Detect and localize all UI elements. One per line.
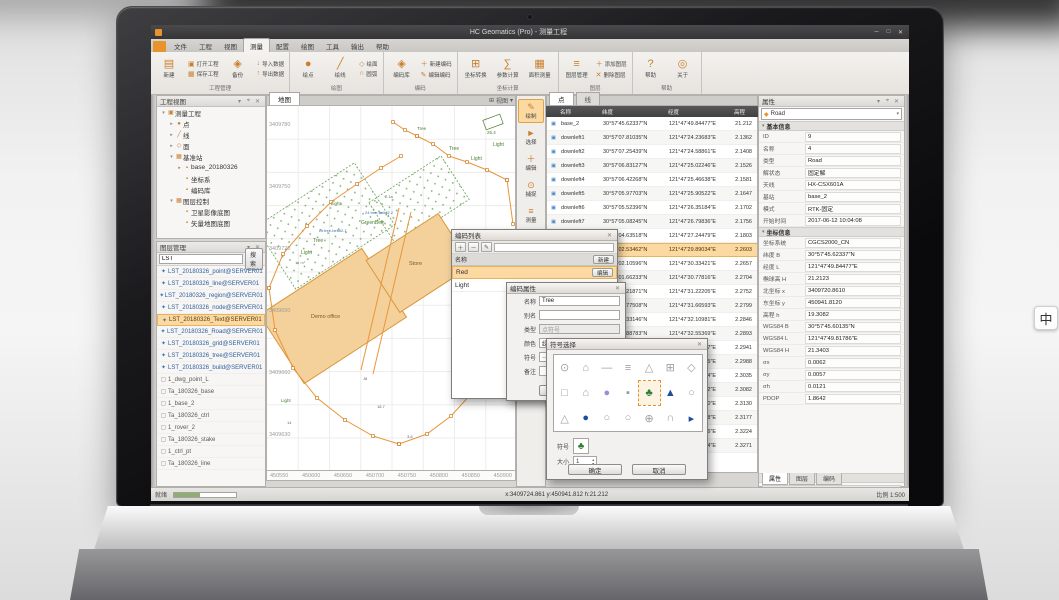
menu-tab-文件[interactable]: 文件 [168, 39, 193, 52]
symbol-cell[interactable]: ▲ [660, 381, 681, 406]
property-value[interactable]: 2017-06-12 10:04:08 [805, 216, 901, 226]
webcam [527, 14, 533, 20]
svg-text:7.1a: 7.1a [385, 194, 394, 199]
property-value[interactable]: 4 [805, 144, 901, 154]
tool-编辑[interactable]: ＋编辑 [518, 151, 544, 175]
ribbon-tabbar: 文件工程视图测量配置绘图工具输出帮助 [151, 39, 909, 52]
ime-indicator: 中 [1034, 306, 1058, 330]
ribbon-button-label: 绘点 [303, 71, 314, 79]
ribbon-group-label: 编码 [387, 84, 454, 94]
properties-tab-图层[interactable]: 图层 [789, 473, 815, 485]
ribbon-group: ▤新建▣打开工程▦保存工程◈备份↓导入数据↑导出数据工程管理 [151, 52, 290, 94]
properties-tab-属性[interactable]: 属性 [762, 473, 788, 485]
ribbon-button-新建编码[interactable]: ＋新建编码 [419, 59, 454, 69]
ribbon-icon: ◇ [359, 60, 364, 68]
property-value[interactable]: 19.3082 [805, 310, 901, 320]
keyboard-area [70, 549, 988, 600]
ribbon-button-编码库[interactable]: ◈编码库 [387, 53, 417, 84]
ribbon-icon: ▤ [164, 58, 174, 70]
minimize-button[interactable]: ─ [871, 27, 882, 37]
ribbon-icon: ⊞ [471, 58, 480, 70]
x-axis-tick: 450750 [398, 473, 416, 479]
ribbon-button-参数计算[interactable]: ∑参数计算 [493, 53, 523, 84]
ribbon-icon: ＋ [421, 59, 428, 69]
ribbon-icon: ≡ [573, 58, 579, 70]
collapse-icon[interactable]: ▾ [874, 98, 883, 105]
ribbon-button-圆弧[interactable]: ∩圆弧 [357, 70, 379, 78]
table-tab-点[interactable]: 点 [549, 92, 574, 105]
svg-text:Light: Light [301, 250, 312, 256]
tree-item-点[interactable]: ▸●点 [157, 118, 265, 129]
section-header-坐标信息[interactable]: ▾坐标信息 [759, 227, 904, 237]
svg-text:Tree: Tree [313, 238, 323, 244]
ribbon-button-保存工程[interactable]: ▦保存工程 [186, 70, 221, 78]
dialog-title: 编码列表 [455, 230, 481, 240]
property-row: 高程 h19.3082 [759, 309, 904, 321]
ribbon-icon: ▣ [188, 60, 195, 68]
tree-item-编码库[interactable]: ▪编码库 [157, 184, 265, 195]
ribbon-group-label: 帮助 [636, 84, 698, 94]
layer-search-input[interactable] [159, 254, 243, 264]
tool-测量[interactable]: ≡测量 [518, 203, 544, 227]
ribbon-button-label: 导出数据 [262, 70, 284, 78]
symbol-cell[interactable]: ● [596, 381, 617, 406]
ribbon-button-label: 打开工程 [197, 60, 219, 68]
ribbon-button-label: 备份 [232, 71, 243, 79]
ribbon-button-关于[interactable]: ◎关于 [668, 53, 698, 84]
map-tabbar: 地图 ⊞ 视图 ▾ [266, 95, 516, 106]
remove-code-button[interactable]: － [468, 242, 479, 252]
property-value[interactable]: 450941.8120 [805, 298, 901, 308]
close-icon[interactable]: ✕ [892, 98, 901, 105]
ribbon-button-打开工程[interactable]: ▣打开工程 [186, 60, 221, 68]
ribbon-icon: ╱ [337, 58, 344, 70]
x-axis-tick: 450850 [462, 473, 480, 479]
y-axis-tick: 3409720 [269, 246, 290, 252]
property-row: 经度 L121°47'49.84477″E [759, 261, 904, 273]
code-filter-input[interactable] [494, 243, 614, 252]
x-axis-tick: 450550 [270, 473, 288, 479]
tree-item-矢量地图底图[interactable]: ▪矢量地图底图 [157, 217, 265, 228]
field-类型: 点符号 [539, 324, 620, 334]
file-menu-icon[interactable] [153, 41, 166, 52]
y-axis-tick: 3409780 [269, 122, 290, 128]
diamond-icon: ◆ [764, 111, 769, 118]
property-grid: ▾基本信息ID9名称4类型Road解状态固定解天线HX-CSX601A基站bas… [759, 121, 904, 405]
layer-item[interactable]: ✦LST_20180326_build@SERVER01 [157, 362, 265, 374]
tool-捕捉[interactable]: ⊙捕捉 [518, 177, 544, 201]
ribbon-button-label: 参数计算 [497, 71, 519, 79]
svg-text:Tree: Tree [417, 126, 427, 131]
properties-header: 属性 ▾ ⌖ ✕ [759, 96, 904, 107]
ribbon-group: ⊞坐标转换∑参数计算▦面积测量坐标计算 [458, 52, 559, 94]
svg-text:J8: J8 [363, 376, 368, 381]
ribbon-group-label: 坐标计算 [461, 84, 555, 94]
layer-item[interactable]: ▢1_rover_2 [157, 422, 265, 434]
menu-tab-视图[interactable]: 视图 [218, 39, 243, 52]
layer-item[interactable]: ✦LST_20180326_node@SERVER01 [157, 302, 265, 314]
properties-panel: 属性 ▾ ⌖ ✕ ◆ Road ▾ ▾基本信息ID9名称4类型Road解状态固定… [758, 95, 905, 487]
ribbon-button-label: 图层管理 [566, 71, 588, 79]
symbol-cell[interactable]: □ [554, 381, 575, 406]
ribbon-button-label: 圆弧 [366, 70, 377, 78]
layer-item[interactable]: ✦LST_20180326_tree@SERVER01 [157, 350, 265, 362]
svg-text:18.7: 18.7 [377, 404, 386, 409]
symbol-cell[interactable]: ⌂ [575, 355, 596, 381]
ribbon-button-label: 坐标转换 [465, 71, 487, 79]
ribbon-button-添加图层[interactable]: ＋添加图层 [594, 59, 629, 69]
ribbon-button-label: 导入数据 [262, 60, 284, 68]
svg-text:24 tree-belt#2.2: 24 tree-belt#2.2 [365, 210, 394, 215]
layer-item[interactable]: ✦LST_20180326_Text@SERVER01 [157, 314, 265, 326]
field-别名[interactable] [539, 310, 620, 320]
property-row: 坐标系统CGCS2000_CN [759, 237, 904, 249]
photo-background: HC Geomatics (Pro) - 测量工程 ─□✕ 文件工程视图测量配置… [0, 0, 1059, 600]
symbol-cell[interactable]: ♣ [639, 381, 660, 406]
ribbon-icon: ● [305, 58, 312, 70]
ribbon-button-编辑编码[interactable]: ✎编辑编码 [419, 71, 454, 79]
property-row: 纬度 B30°57'45.62337″N [759, 249, 904, 261]
symbol-cell[interactable]: — [596, 355, 617, 381]
ribbon-icon: ▦ [188, 70, 195, 78]
ribbon-icon: ∩ [359, 70, 364, 77]
close-button[interactable]: ✕ [895, 27, 906, 37]
property-value[interactable]: 0.0062 [805, 358, 901, 368]
ribbon-button-删除图层[interactable]: ✕删除图层 [594, 71, 629, 79]
ribbon-button-绘线[interactable]: ╱绘线 [325, 53, 355, 84]
svg-text:Light: Light [281, 398, 292, 403]
form-row-类型: 类型点符号 [507, 322, 625, 336]
form-row-名称: 名称Tree [507, 294, 625, 308]
symbol-cell[interactable]: ○ [681, 381, 702, 406]
tree-item-面[interactable]: ▸◇面 [157, 140, 265, 151]
feature-type-combo[interactable]: ◆ Road ▾ [761, 108, 902, 120]
menu-tab-帮助[interactable]: 帮助 [370, 39, 395, 52]
table-row[interactable]: ▣downleft130°57'07.81035″N121°47'24.2368… [547, 131, 757, 145]
ribbon-icon: ▦ [534, 58, 544, 70]
ribbon-button-绘面[interactable]: ◇绘面 [357, 60, 379, 68]
tree-item-线[interactable]: ▸╱线 [157, 129, 265, 140]
code-list-header: 名称 新建 [452, 254, 617, 266]
ribbon-button-绘点[interactable]: ●绘点 [293, 53, 323, 84]
menu-tab-工具[interactable]: 工具 [320, 39, 345, 52]
project-tree-panel: 工程视图 ▾ ⌖ ✕ ▾▣测量工程▸●点▸╱线▸◇面▾▦基准站▸▪base_20… [156, 95, 266, 239]
table-column-header: 高程 [733, 108, 752, 116]
ribbon-button-新建[interactable]: ▤新建 [154, 53, 184, 84]
close-icon[interactable]: ✕ [253, 98, 262, 105]
column-name: 名称 [455, 255, 467, 264]
table-column-header: 名称 [559, 108, 601, 116]
collapse-icon[interactable]: ▾ [235, 98, 244, 105]
tool-绘制[interactable]: ✎绘制 [518, 99, 544, 123]
tree-item-坐标系[interactable]: ▪坐标系 [157, 173, 265, 184]
ribbon-group-label: 绘图 [293, 84, 379, 94]
ribbon-group: ◈编码库＋新建编码✎编辑编码编码 [384, 52, 458, 94]
ok-button[interactable]: 确定 [568, 464, 622, 475]
edit-code-button[interactable]: ✎ [481, 242, 492, 252]
svg-text:Demo office: Demo office [311, 314, 340, 320]
layer-item[interactable]: ▢Ta_180326_stake [157, 434, 265, 446]
property-value[interactable]: 21.3403 [805, 346, 901, 356]
property-value[interactable]: 9 [805, 132, 901, 142]
menu-tab-工程[interactable]: 工程 [193, 39, 218, 52]
table-column-header: 纬度 [601, 108, 667, 116]
ribbon-button-导入数据[interactable]: ↓导入数据 [255, 60, 287, 68]
chevron-down-icon: ▾ [896, 111, 899, 117]
property-value[interactable]: 3409720.8610 [805, 286, 901, 296]
table-row[interactable]: ▣downleft530°57'05.97703″N121°47'25.9052… [547, 187, 757, 201]
close-icon[interactable]: ✕ [613, 285, 622, 292]
project-tree: ▾▣测量工程▸●点▸╱线▸◇面▾▦基准站▸▪base_20180326▪坐标系▪… [157, 107, 265, 228]
property-value[interactable]: 30°57'45.60135″N [805, 322, 901, 332]
layer-item[interactable]: ▢1_dwg_point_L [157, 374, 265, 386]
code-item-Red[interactable]: Red编辑 [452, 266, 617, 279]
tree-item-卫星影像底图[interactable]: ▪卫星影像底图 [157, 206, 265, 217]
ribbon-icon: ↓ [257, 60, 261, 67]
section-header-基本信息[interactable]: ▾基本信息 [759, 121, 904, 131]
property-value[interactable]: 1.8642 [805, 394, 901, 404]
x-axis-tick: 450650 [334, 473, 352, 479]
property-row: WGS84 L121°47'49.81786″E [759, 333, 904, 345]
laptop-lid: HC Geomatics (Pro) - 测量工程 ─□✕ 文件工程视图测量配置… [116, 6, 944, 507]
ribbon-group: ≡图层管理＋添加图层✕删除图层图层 [559, 52, 633, 94]
property-row: 开始时间2017-06-12 10:04:08 [759, 215, 904, 227]
ribbon-button-帮助[interactable]: ?帮助 [636, 53, 666, 84]
ribbon-icon: ◈ [397, 58, 405, 70]
x-axis-tick: 450700 [366, 473, 384, 479]
ribbon-button-图层管理[interactable]: ≡图层管理 [562, 53, 592, 84]
code-list-toolbar: ＋－✎ [452, 241, 617, 254]
symbol-cell[interactable]: ◇ [681, 355, 702, 381]
y-axis-tick: 3409630 [269, 432, 290, 438]
close-icon[interactable]: ✕ [695, 341, 704, 348]
symbol-cell[interactable]: ∩ [660, 405, 681, 431]
table-row[interactable]: ▣downleft630°57'05.52396″N121°47'26.3518… [547, 201, 757, 215]
symbol-cell[interactable]: △ [554, 405, 575, 431]
ribbon-group: ?帮助◎关于帮助 [633, 52, 702, 94]
property-value[interactable]: CGCS2000_CN [805, 238, 901, 248]
dialog-titlebar: 符号选择 ✕ [547, 339, 707, 350]
ribbon-button-label: 编辑编码 [428, 71, 450, 79]
symbol-cell[interactable]: ⊕ [639, 405, 660, 431]
svg-text:Dr.tree-belt#2.1: Dr.tree-belt#2.1 [319, 228, 347, 233]
property-row: WGS84 B30°57'45.60135″N [759, 321, 904, 333]
table-row[interactable]: ▣downleft430°57'06.42268″N121°47'25.4663… [547, 173, 757, 187]
add-code-button[interactable]: ＋ [455, 242, 466, 252]
menu-tab-绘图[interactable]: 绘图 [295, 39, 320, 52]
layer-item[interactable]: ▢1_base_2 [157, 398, 265, 410]
property-value[interactable]: 121°47'49.81786″E [805, 334, 901, 344]
ribbon-icon: ∑ [504, 58, 512, 70]
symbol-cell[interactable]: ⊞ [660, 355, 681, 381]
svg-text:GreenBelt: GreenBelt [361, 220, 384, 226]
property-row: σh0.0121 [759, 381, 904, 393]
field-名称[interactable]: Tree [539, 296, 620, 306]
ribbon-group-label: 工程管理 [154, 84, 286, 94]
property-row: 东坐标 y450941.8120 [759, 297, 904, 309]
symbol-cell[interactable]: ⌂ [575, 381, 596, 406]
dialog-titlebar: 编码属性 ✕ [507, 283, 625, 294]
svg-text:14: 14 [287, 420, 292, 425]
property-value[interactable]: HX-CSX601A [805, 180, 901, 190]
pin-icon[interactable]: ⌖ [244, 98, 253, 105]
svg-text:Light: Light [493, 142, 504, 148]
layer-item[interactable]: ✦LST_20180326_grid@SERVER01 [157, 338, 265, 350]
symbol-preview: ♣ [573, 438, 589, 454]
edit-button[interactable]: 编辑 [592, 268, 613, 277]
ribbon-button-label: 编码库 [393, 71, 410, 79]
window-controls: ─□✕ [871, 27, 906, 37]
status-ready: 就绪 [155, 490, 167, 499]
pin-icon[interactable]: ⌖ [883, 98, 892, 105]
status-bar: 就绪 x:3409724.861 y:450941.812 h:21.212 比… [151, 487, 909, 501]
dialog-titlebar: 编码列表 ✕ [452, 230, 617, 241]
property-value[interactable]: 21.2123 [805, 274, 901, 284]
symbol-cell[interactable]: ≡ [617, 355, 638, 381]
table-header: 名称纬度经度高程 [546, 106, 758, 117]
ribbon-icon: ＋ [596, 59, 603, 69]
layer-item[interactable]: ▢Ta_180326_line [157, 458, 265, 470]
property-value[interactable]: 121°47'49.84477″E [805, 262, 901, 272]
ribbon-button-label: 关于 [677, 71, 688, 79]
ribbon-icon: ◎ [678, 58, 688, 70]
property-value[interactable]: 固定解 [805, 168, 901, 178]
close-icon[interactable]: ✕ [605, 232, 614, 239]
cancel-button[interactable]: 取消 [632, 464, 686, 475]
property-value[interactable]: 0.0121 [805, 382, 901, 392]
table-row[interactable]: ▣downleft730°57'05.08245″N121°47'26.7983… [547, 215, 757, 229]
table-row[interactable]: ▣downleft330°57'06.83127″N121°47'25.0224… [547, 159, 757, 173]
tree-item-测量工程[interactable]: ▾▣测量工程 [157, 107, 265, 118]
svg-text:Tree: Tree [449, 146, 459, 152]
map-view-controls[interactable]: ⊞ 视图 ▾ [489, 96, 515, 105]
ribbon-button-面积测量[interactable]: ▦面积测量 [525, 53, 555, 84]
dialog-title: 符号选择 [550, 339, 576, 349]
ribbon-button-导出数据[interactable]: ↑导出数据 [255, 70, 287, 78]
layer-item[interactable]: ▢1_ctrl_pt [157, 446, 265, 458]
layer-item[interactable]: ✦LST_20180326_Road@SERVER01 [157, 326, 265, 338]
table-row[interactable]: ▣downleft230°57'07.25439″N121°47'24.5886… [547, 145, 757, 159]
window-titlebar: HC Geomatics (Pro) - 测量工程 ─□✕ [151, 25, 909, 39]
ribbon-toolbar: ▤新建▣打开工程▦保存工程◈备份↓导入数据↑导出数据工程管理●绘点╱绘线◇绘面∩… [151, 52, 909, 95]
property-row: 模式RTK-固定 [759, 203, 904, 215]
table-row[interactable]: ▣base_230°57'45.62337″N121°47'49.84477″E… [547, 117, 757, 131]
tree-item-基准站[interactable]: ▾▦基准站 [157, 151, 265, 162]
menu-tab-输出[interactable]: 输出 [345, 39, 370, 52]
properties-title: 属性 [762, 96, 775, 106]
symbol-cell[interactable]: ▸ [681, 405, 702, 431]
ribbon-button-label: 绘面 [367, 60, 378, 68]
menu-tab-测量[interactable]: 测量 [243, 38, 270, 52]
tree-panel-header: 工程视图 ▾ ⌖ ✕ [157, 96, 265, 107]
layer-search-button[interactable]: 搜索 [245, 248, 263, 270]
property-value[interactable]: base_2 [805, 192, 901, 202]
symbol-cell[interactable]: ○ [617, 405, 638, 431]
menu-tab-配置[interactable]: 配置 [270, 39, 295, 52]
status-scale[interactable]: 比例 1:500 [876, 490, 905, 499]
symbol-cell[interactable]: △ [639, 355, 660, 381]
y-axis-tick: 3409750 [269, 184, 290, 190]
symbol-cell[interactable]: ⊙ [554, 355, 575, 381]
svg-text:Store: Store [409, 261, 422, 267]
new-code-button[interactable]: 新建 [593, 255, 614, 264]
y-axis-tick: 3409660 [269, 370, 290, 376]
table-tabbar: 点线 [546, 95, 758, 106]
layer-item[interactable]: ✦LST_20180326_region@SERVER01 [157, 290, 265, 302]
property-value[interactable]: RTK-固定 [805, 204, 901, 214]
tool-选择[interactable]: ►选择 [518, 125, 544, 149]
ribbon-button-label: 保存工程 [197, 70, 219, 78]
chevron-down-icon: ▾ [510, 97, 513, 104]
symbol-field: 符号 ♣ [557, 438, 589, 454]
ribbon-icon: ↑ [257, 70, 261, 77]
map-x-axis-labels: 4505504506004506504507004507504508004508… [266, 471, 516, 481]
ribbon-button-坐标转换[interactable]: ⊞坐标转换 [461, 53, 491, 84]
property-row: σy0.0057 [759, 369, 904, 381]
layer-search-row: 搜索 [157, 253, 265, 266]
symbol-cell[interactable]: ○ [596, 405, 617, 431]
ribbon-button-label: 帮助 [645, 71, 656, 79]
properties-tab-编码[interactable]: 编码 [816, 473, 842, 485]
layers-panel-title: 图层管理 [160, 242, 186, 252]
svg-text:Light: Light [471, 156, 482, 162]
symbol-grid: ⊙⌂—≡△⊞◇□⌂●▪♣▲○△●○○⊕∩▸ [553, 354, 703, 432]
layer-item[interactable]: ▢Ta_180326_base [157, 386, 265, 398]
symbol-cell[interactable]: ● [575, 405, 596, 431]
property-value[interactable]: Road [805, 156, 901, 166]
ribbon-icon: ◈ [233, 58, 241, 70]
property-row: 名称4 [759, 143, 904, 155]
status-coordinates: x:3409724.861 y:450941.812 h:21.212 [243, 492, 870, 498]
y-axis-tick: 3409690 [269, 308, 290, 314]
x-axis-tick: 450900 [494, 473, 512, 479]
property-row: 椭球高 H21.2123 [759, 273, 904, 285]
property-row: σx0.0062 [759, 357, 904, 369]
property-value[interactable]: 30°57'45.62337″N [805, 250, 901, 260]
property-row: PDOP1.8642 [759, 393, 904, 405]
ribbon-button-label: 新建 [163, 71, 174, 79]
ribbon-icon: ✎ [421, 71, 427, 79]
tab-map[interactable]: 地图 [269, 92, 300, 105]
property-row: 基站base_2 [759, 191, 904, 203]
tree-panel-title: 工程视图 [160, 96, 186, 106]
layer-item[interactable]: ✦LST_20180326_line@SERVER01 [157, 278, 265, 290]
tree-item-图层控制[interactable]: ▾▦图层控制 [157, 195, 265, 206]
layers-panel: 图层管理 ▾ ✕ 搜索 ✦LST_20180326_point@SERVER01… [156, 241, 266, 487]
tree-item-base_20180326[interactable]: ▸▪base_20180326 [157, 162, 265, 173]
property-row: ID9 [759, 131, 904, 143]
ribbon-button-label: 删除图层 [603, 71, 625, 79]
ribbon-button-备份[interactable]: ◈备份 [223, 53, 253, 84]
property-row: WGS84 H21.3403 [759, 345, 904, 357]
combo-value: Road [771, 111, 895, 117]
lid-notch [479, 506, 579, 515]
property-value[interactable]: 0.0057 [805, 370, 901, 380]
ribbon-icon: ? [648, 58, 654, 70]
property-row: 北坐标 x3409720.8610 [759, 285, 904, 297]
ribbon-icon: ✕ [596, 71, 602, 79]
maximize-button[interactable]: □ [883, 27, 894, 37]
svg-text:Light: Light [331, 201, 342, 206]
progress-bar [173, 492, 237, 498]
table-tab-线[interactable]: 线 [576, 92, 601, 105]
layer-item[interactable]: ✦LST_20180326_point@SERVER01 [157, 266, 265, 278]
layer-item[interactable]: ▢Ta_180326_ctrl [157, 410, 265, 422]
svg-text:14 m²: 14 m² [295, 260, 306, 265]
view-button-label: 视图 [496, 96, 508, 105]
symbol-cell[interactable]: ▪ [617, 381, 638, 406]
property-row: 天线HX-CSX601A [759, 179, 904, 191]
